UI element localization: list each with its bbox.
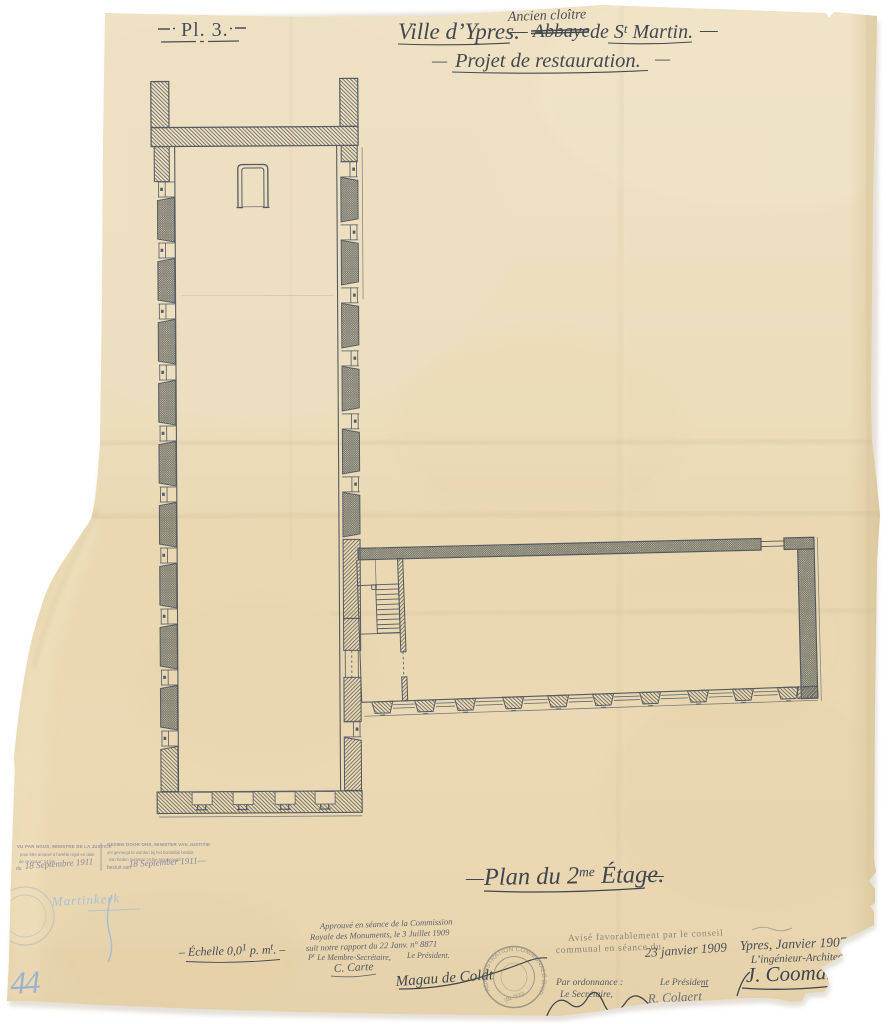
svg-text:de St Martin.: de St Martin. (590, 21, 693, 43)
svg-text:om gevoegd te worden bij het k: om gevoegd te worden bij het koninklijk … (107, 850, 194, 855)
svg-text:—: — (645, 864, 664, 886)
svg-text:Le Président.: Le Président. (406, 951, 450, 960)
svg-text:—: — (699, 19, 718, 41)
svg-text:—: — (431, 51, 448, 70)
svg-text:Projet de restauration.: Projet de restauration. (454, 50, 641, 72)
svg-text:Pr Le Membre-Secrétaire,: Pr Le Membre-Secrétaire, (307, 953, 391, 962)
svg-text:Pl. 3.: Pl. 3. (181, 19, 229, 41)
svg-text:Le Secrétaire,: Le Secrétaire, (559, 990, 613, 1000)
svg-text:besluit van: besluit van (107, 865, 131, 871)
svg-text:Le Président: Le Président (659, 978, 709, 988)
svg-text:du: du (16, 866, 22, 872)
svg-text:—: — (509, 20, 528, 42)
svg-text:Par ordonnance :: Par ordonnance : (555, 978, 623, 988)
svg-text:Ville d’Ypres.: Ville d’Ypres. (398, 19, 520, 44)
svg-text:Plan du 2me Étage.: Plan du 2me Étage. (483, 860, 665, 891)
svg-text:C. Carte: C. Carte (334, 961, 374, 975)
svg-text:—: — (465, 867, 484, 889)
svg-text:– Échelle 0,01 p. mt. –: – Échelle 0,01 p. mt. – (178, 941, 287, 959)
svg-text:—: — (654, 49, 671, 68)
svg-text:44: 44 (9, 963, 41, 1001)
svg-text:GEZIEN DOOR ONS, MINISTER VAN: GEZIEN DOOR ONS, MINISTER VAN JUSTITIE (107, 842, 210, 847)
svg-text:VU PAR NOUS, MINISTRE DE LA JU: VU PAR NOUS, MINISTRE DE LA JUSTICE (17, 844, 112, 849)
